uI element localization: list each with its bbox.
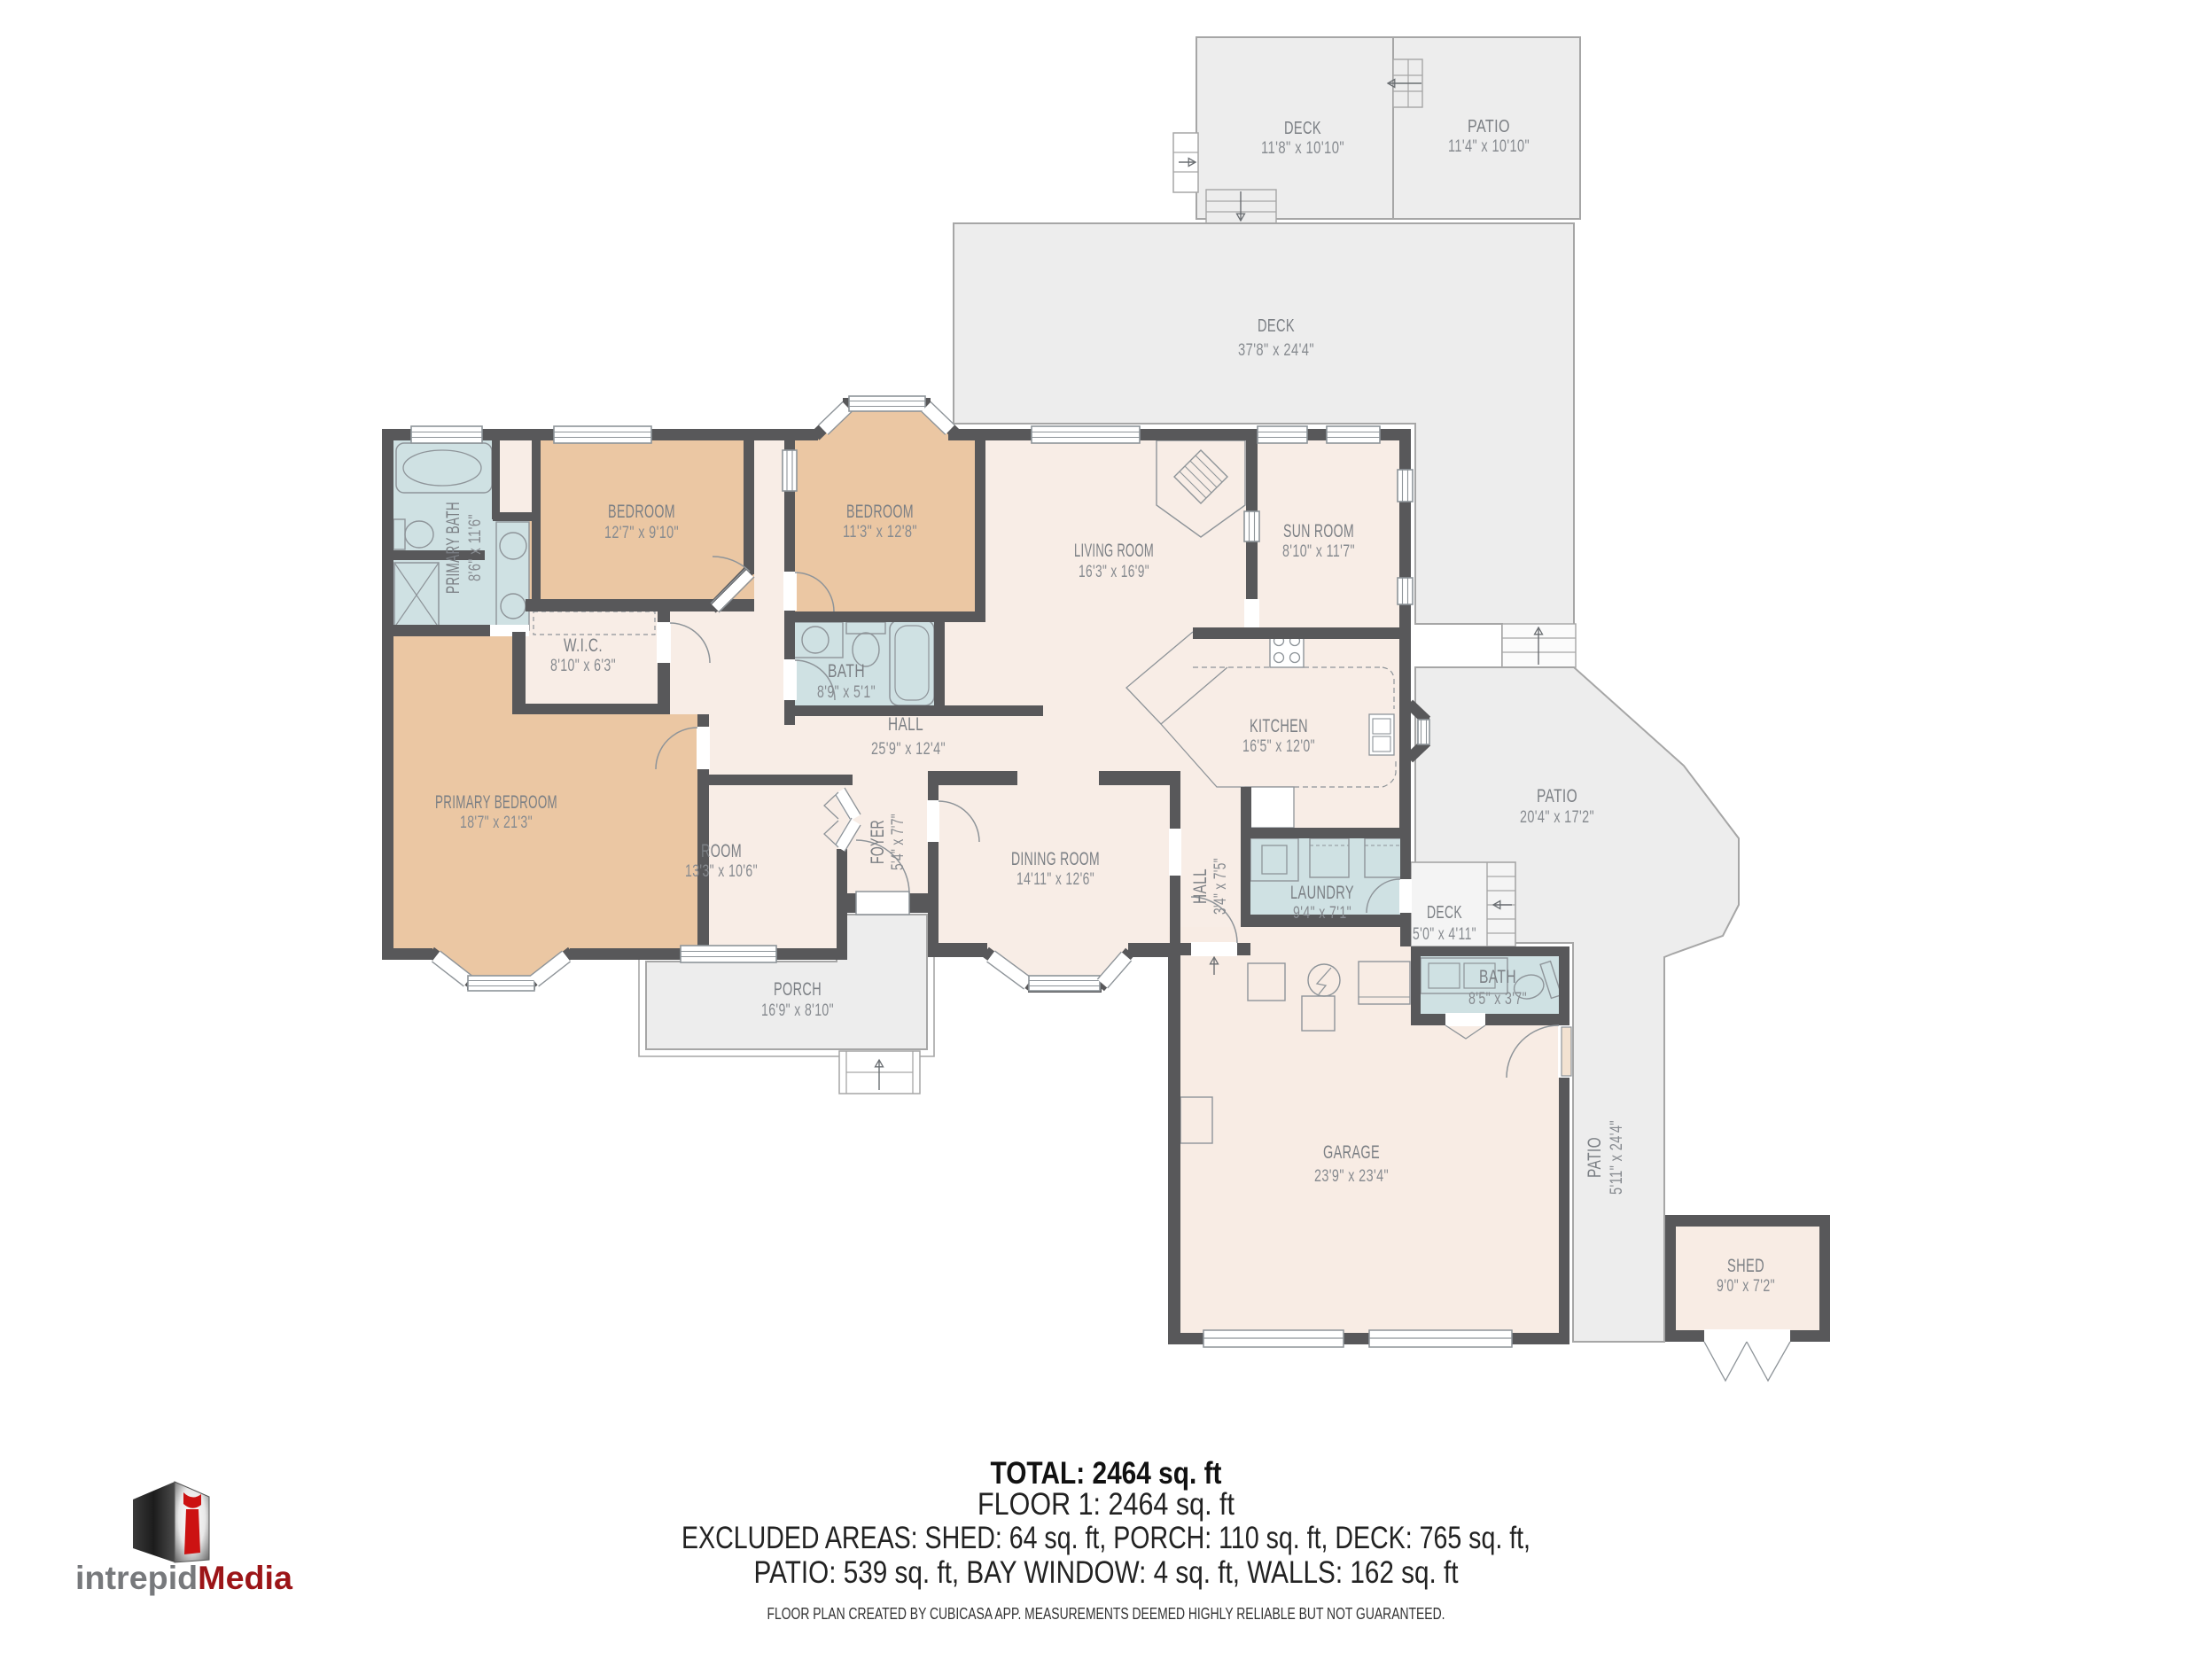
svg-text:EXCLUDED AREAS: SHED: 64 sq. f: EXCLUDED AREAS: SHED: 64 sq. ft, PORCH: …: [682, 1521, 1530, 1555]
svg-text:11'3" x 12'8": 11'3" x 12'8": [843, 523, 917, 541]
svg-text:5'11" x 24'4": 5'11" x 24'4": [1608, 1120, 1626, 1195]
svg-text:HALL: HALL: [888, 714, 923, 735]
svg-text:SUN ROOM: SUN ROOM: [1283, 521, 1354, 541]
svg-text:11'4" x 10'10": 11'4" x 10'10": [1448, 137, 1530, 156]
svg-text:BEDROOM: BEDROOM: [846, 502, 914, 522]
svg-text:16'3" x 16'9": 16'3" x 16'9": [1079, 563, 1149, 581]
svg-text:12'7" x 9'10": 12'7" x 9'10": [604, 524, 679, 542]
svg-text:11'8" x 10'10": 11'8" x 10'10": [1261, 139, 1344, 158]
svg-text:8'9" x 5'1": 8'9" x 5'1": [817, 683, 876, 702]
svg-text:PATIO: PATIO: [1468, 117, 1510, 136]
svg-text:5'4" x 7'7": 5'4" x 7'7": [889, 814, 907, 870]
svg-text:BATH: BATH: [1479, 967, 1516, 987]
svg-text:5'0" x 4'11": 5'0" x 4'11": [1413, 925, 1476, 944]
svg-text:8'10" x 6'3": 8'10" x 6'3": [550, 657, 616, 675]
svg-text:9'4" x 7'1": 9'4" x 7'1": [1293, 904, 1351, 923]
svg-text:BATH: BATH: [828, 661, 865, 682]
svg-text:16'9" x 8'10": 16'9" x 8'10": [761, 1001, 834, 1020]
svg-text:PATIO: PATIO: [1585, 1137, 1605, 1178]
svg-text:PRIMARY BATH: PRIMARY BATH: [443, 502, 463, 594]
svg-text:14'11" x 12'6": 14'11" x 12'6": [1016, 870, 1094, 889]
svg-text:PATIO: 539 sq. ft, BAY WINDOW:: PATIO: 539 sq. ft, BAY WINDOW: 4 sq. ft,…: [754, 1555, 1459, 1590]
svg-text:DECK: DECK: [1284, 119, 1321, 138]
svg-text:18'7" x 21'3": 18'7" x 21'3": [460, 814, 533, 832]
svg-text:KITCHEN: KITCHEN: [1250, 716, 1308, 736]
svg-text:8'6" x 11'6": 8'6" x 11'6": [466, 514, 485, 581]
svg-text:TOTAL: 2464 sq. ft: TOTAL: 2464 sq. ft: [991, 1456, 1222, 1491]
svg-text:37'8" x 24'4": 37'8" x 24'4": [1238, 341, 1314, 360]
svg-text:PORCH: PORCH: [774, 979, 822, 1000]
svg-text:ROOM: ROOM: [701, 841, 742, 861]
svg-text:PATIO: PATIO: [1537, 786, 1577, 806]
svg-text:9'0" x 7'2": 9'0" x 7'2": [1717, 1277, 1775, 1296]
svg-text:13'3" x 10'6": 13'3" x 10'6": [685, 862, 758, 881]
svg-text:GARAGE: GARAGE: [1323, 1142, 1380, 1163]
svg-text:FOYER: FOYER: [868, 820, 888, 864]
svg-text:23'9" x 23'4": 23'9" x 23'4": [1314, 1167, 1389, 1186]
svg-text:LAUNDRY: LAUNDRY: [1290, 883, 1354, 903]
svg-text:25'9" x 12'4": 25'9" x 12'4": [871, 740, 946, 759]
svg-text:16'5" x 12'0": 16'5" x 12'0": [1242, 737, 1315, 756]
svg-text:DECK: DECK: [1427, 903, 1462, 923]
svg-text:W.I.C.: W.I.C.: [564, 635, 603, 656]
svg-text:DECK: DECK: [1258, 316, 1295, 336]
svg-text:20'4" x 17'2": 20'4" x 17'2": [1520, 808, 1594, 827]
svg-text:DINING ROOM: DINING ROOM: [1011, 849, 1100, 869]
svg-text:SHED: SHED: [1727, 1256, 1764, 1276]
svg-text:BEDROOM: BEDROOM: [608, 502, 675, 522]
svg-text:8'5" x 3'7": 8'5" x 3'7": [1468, 990, 1527, 1009]
svg-text:intrepidMedia: intrepidMedia: [75, 1560, 292, 1596]
svg-text:3'4" x 7'5": 3'4" x 7'5": [1211, 858, 1230, 915]
svg-text:FLOOR 1: 2464 sq. ft: FLOOR 1: 2464 sq. ft: [977, 1487, 1235, 1522]
svg-text:LIVING ROOM: LIVING ROOM: [1074, 541, 1154, 561]
svg-text:8'10" x 11'7": 8'10" x 11'7": [1282, 542, 1355, 561]
svg-text:PRIMARY BEDROOM: PRIMARY BEDROOM: [435, 792, 557, 813]
svg-text:FLOOR PLAN CREATED BY CUBICASA: FLOOR PLAN CREATED BY CUBICASA APP. MEAS…: [767, 1605, 1445, 1623]
svg-text:HALL: HALL: [1190, 868, 1211, 904]
